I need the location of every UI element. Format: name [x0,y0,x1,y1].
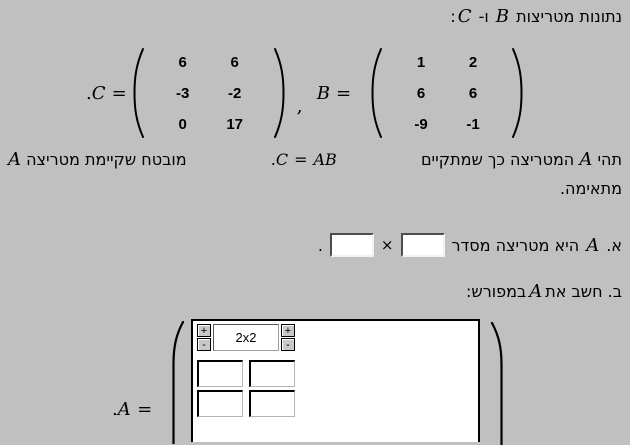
close-paren-icon [511,47,525,139]
matrix-cell: 2 [447,54,499,71]
rows-increment-button[interactable]: + [197,324,211,337]
question-b-text2: במפורש: [466,282,526,301]
c-equals-ab-formula: C=AB [276,150,337,169]
matrix-cell-input-1-2[interactable] [249,360,295,387]
open-paren-icon [369,47,383,139]
matrix-cell-input-2-1[interactable] [197,390,243,417]
matrix-cell: 6 [447,85,499,102]
question-b-text1: חשב את [545,282,602,301]
matrix-b-values: 1 2 6 6 -9 -1 [387,47,507,140]
statement-segment: תהי A המטריצה כך שמתקיים [421,149,622,170]
matrix-cell-input-1-1[interactable] [197,360,243,387]
answer-matrix-label: .A = [112,396,152,420]
given-matrices: .C = 6 6 -3 -2 0 17 , B = 1 2 6 6 -9 -1 [86,46,525,140]
matrix-b-letter: B [494,6,511,27]
open-paren-icon [131,47,145,139]
question-b: ב. חשב אתAבמפורש: [466,281,622,302]
multiplication-sign: × [381,236,394,254]
matrix-cell-input-2-2[interactable] [249,390,295,417]
question-a: א. A היא מטריצה מסדר × . [318,233,622,257]
cols-increment-button[interactable]: + [281,324,295,337]
title-colon: : [450,7,455,26]
statement-formula: C=AB. [271,150,337,169]
matrix-cell: -1 [447,116,499,133]
matrix-cell: 0 [157,116,209,133]
close-paren-icon [273,47,287,139]
rows-decrement-button[interactable]: - [197,338,211,351]
matrix-b-label: B = [317,82,351,104]
matrix-rows-input[interactable] [401,233,445,257]
question-a-period: . [318,236,323,255]
matrix-c-label: .C = [86,82,127,104]
question-a-text: היא מטריצה מסדר [452,236,580,255]
matrix-cells-grid [197,360,295,417]
matrix-cell: 6 [157,54,209,71]
matrix-size-display: 2x2 [213,324,279,351]
matrix-cell: -3 [157,85,209,102]
matrix-size-spinner: + - 2x2 + - [197,324,295,351]
matrix-cell: 17 [209,116,261,133]
matrix-cols-input[interactable] [330,233,374,257]
matrix-cell: 6 [395,85,447,102]
cols-stepper: + - [281,324,295,351]
matrix-a-letter: A [526,281,545,302]
open-paren-icon [168,320,186,444]
question-b-prefix: ב. [608,282,622,301]
exercise-title: נתונות מטריצות B ו- C: [450,6,622,27]
rows-stepper: + - [197,324,211,351]
matrix-editor-panel: + - 2x2 + - [191,319,480,442]
matrix-cell: -2 [209,85,261,102]
cols-decrement-button[interactable]: - [281,338,295,351]
matrix-a-letter: A [579,149,592,170]
title-text: נתונות מטריצות [516,7,622,26]
problem-statement: תהי A המטריצה כך שמתקיים C=AB. מובטח שקי… [8,149,622,198]
matrix-c-letter: C [456,6,474,27]
matrix-a-letter: A [586,235,599,256]
title-conjunction: ו- [479,7,489,26]
problem-statement-line2: מתאימה. [8,179,622,198]
matrix-cell: 1 [395,54,447,71]
matrices-separator-comma: , [297,95,303,117]
problem-statement-line1: תהי A המטריצה כך שמתקיים C=AB. מובטח שקי… [8,149,622,170]
matrix-c-values: 6 6 -3 -2 0 17 [149,47,269,140]
close-paren-icon [489,321,507,445]
question-a-prefix: א. [606,236,622,255]
statement-segment: מובטח שקיימת מטריצה A [8,149,187,170]
matrix-a-letter: A [8,149,21,170]
matrix-cell: -9 [395,116,447,133]
matrix-cell: 6 [209,54,261,71]
